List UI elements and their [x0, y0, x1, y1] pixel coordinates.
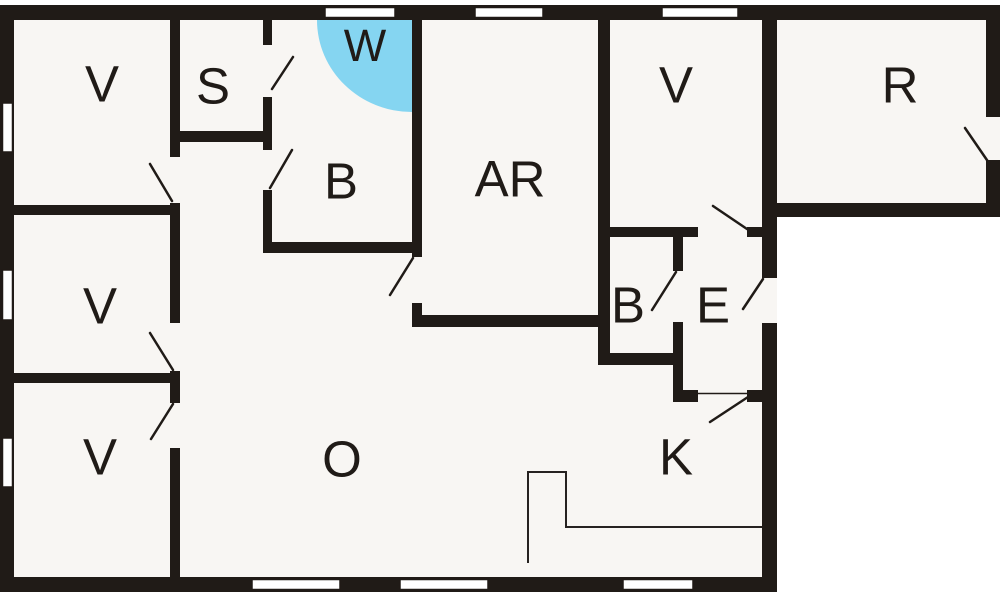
wall-sauna-bathroom-a: [263, 20, 272, 45]
wall-left-column-d: [170, 448, 180, 577]
room-label-living-room: O: [322, 430, 362, 487]
wall-exterior-right-lower: [762, 323, 777, 577]
room-label-sauna: S: [196, 57, 230, 114]
wall-divider-v2-v3: [0, 373, 180, 383]
room-label-shower: W: [344, 20, 387, 71]
wall-v-bottom-left-part: [598, 227, 698, 237]
room-label-entrance: E: [696, 276, 730, 333]
wall-wc-bottom: [598, 353, 683, 365]
window-bottom-living-1: [252, 580, 340, 590]
window-bottom-kitchen: [623, 580, 693, 590]
wall-left-column-b: [170, 203, 180, 323]
window-left-bedroom-1: [3, 103, 13, 152]
room-label-bedroom-mid-left: V: [83, 277, 117, 334]
window-left-bedroom-3: [3, 438, 13, 487]
wall-ar-v-divider: [598, 20, 610, 365]
wall-bathroom-ar-a: [412, 20, 422, 257]
wall-r-room-right-lower: [986, 160, 1000, 203]
wall-sauna-bathroom-b: [263, 97, 272, 150]
room-label-wc: B: [611, 276, 645, 333]
room-label-bathroom: B: [324, 152, 358, 209]
wall-wc-entrance-a: [673, 237, 683, 271]
wall-ar-bottom: [412, 315, 610, 327]
room-label-room-right: R: [882, 56, 919, 113]
wall-entrance-top-right-part: [747, 227, 762, 237]
room-label-bedroom-bottom-left: V: [83, 428, 117, 485]
room-label-bedroom-top-left: V: [85, 55, 119, 112]
wall-bathroom-bottom: [263, 242, 422, 253]
wall-left-column-c: [170, 371, 180, 403]
wall-kitchen-top-left: [673, 390, 698, 402]
window-top-shower: [325, 8, 395, 18]
room-label-kitchen: K: [659, 428, 693, 485]
wall-exterior-right-upper: [762, 20, 777, 278]
window-left-bedroom-2: [3, 270, 13, 320]
wall-r-room-bottom: [762, 203, 1000, 217]
room-label-bedroom-top-right: V: [659, 56, 693, 113]
window-top-bedroom-right: [662, 8, 738, 18]
floor-plan-drawing: V S W B AR V V V R B E O K: [0, 0, 1000, 592]
wall-r-room-right-upper: [986, 20, 1000, 117]
wall-sauna-bottom: [170, 131, 272, 142]
window-top-activity-room: [475, 8, 543, 18]
room-label-activity-room: AR: [475, 150, 546, 207]
floor-area: [0, 5, 1000, 592]
wall-kitchen-top-right: [747, 390, 763, 402]
window-bottom-living-2: [400, 580, 488, 590]
floor-plan: V S W B AR V V V R B E O K: [0, 0, 1000, 592]
wall-divider-v1-v2: [0, 205, 180, 215]
